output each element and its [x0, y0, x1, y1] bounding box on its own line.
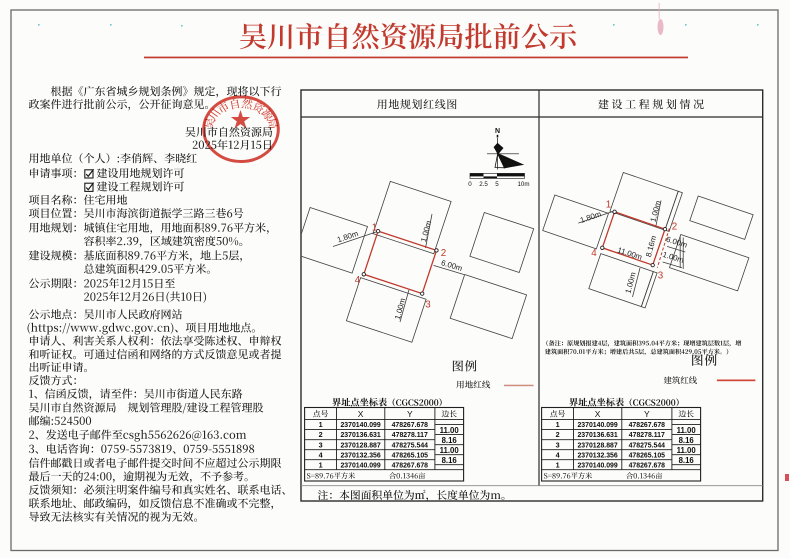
svg-text:4: 4 — [355, 275, 361, 286]
svg-text:0: 0 — [468, 181, 472, 188]
svg-text:478267.678: 478267.678 — [392, 422, 429, 429]
svg-text:478267.678: 478267.678 — [392, 462, 429, 469]
svg-text:4: 4 — [591, 248, 597, 259]
svg-text:478278.117: 478278.117 — [629, 432, 665, 439]
svg-text:Y: Y — [407, 409, 413, 419]
svg-text:2370140.099: 2370140.099 — [340, 422, 380, 429]
svg-text:1: 1 — [372, 223, 377, 234]
svg-text:2: 2 — [319, 430, 323, 439]
svg-text:478267.678: 478267.678 — [629, 422, 666, 429]
svg-text:2370128.887: 2370128.887 — [577, 442, 617, 449]
svg-text:2370132.356: 2370132.356 — [577, 452, 617, 459]
svg-text:8.16: 8.16 — [679, 436, 695, 445]
svg-text:10m: 10m — [517, 181, 529, 188]
svg-text:11.00: 11.00 — [677, 426, 697, 435]
svg-text:3: 3 — [556, 440, 560, 449]
svg-text:2370136.631: 2370136.631 — [577, 432, 617, 439]
svg-text:1: 1 — [319, 420, 323, 429]
svg-text:2370128.887: 2370128.887 — [340, 442, 380, 449]
svg-text:8.16: 8.16 — [442, 456, 458, 465]
svg-text:1: 1 — [556, 460, 560, 469]
svg-text:478275.544: 478275.544 — [392, 442, 429, 449]
svg-text:478265.105: 478265.105 — [629, 452, 666, 459]
svg-text:4: 4 — [556, 450, 560, 459]
svg-text:1: 1 — [606, 199, 611, 210]
svg-text:478275.544: 478275.544 — [629, 442, 666, 449]
svg-text:2370140.099: 2370140.099 — [340, 462, 380, 469]
svg-text:11.00: 11.00 — [440, 426, 460, 435]
svg-text:478267.678: 478267.678 — [629, 462, 666, 469]
svg-text:2370140.099: 2370140.099 — [577, 422, 617, 429]
svg-text:478265.105: 478265.105 — [392, 452, 429, 459]
svg-text:2: 2 — [556, 430, 560, 439]
svg-text:2370136.631: 2370136.631 — [340, 432, 380, 439]
svg-text:N: N — [495, 128, 500, 135]
svg-text:478278.117: 478278.117 — [392, 432, 428, 439]
svg-text:8.16: 8.16 — [442, 436, 458, 445]
svg-text:11.00: 11.00 — [677, 446, 697, 455]
svg-text:3: 3 — [319, 440, 323, 449]
svg-text:2370132.356: 2370132.356 — [340, 452, 380, 459]
svg-text:2.5: 2.5 — [479, 181, 488, 188]
svg-text:X: X — [358, 409, 364, 419]
svg-text:5: 5 — [495, 181, 499, 188]
svg-text:1: 1 — [556, 420, 560, 429]
svg-text:1: 1 — [319, 460, 323, 469]
svg-text:3: 3 — [658, 270, 664, 281]
svg-text:2: 2 — [441, 248, 446, 259]
svg-text:Y: Y — [644, 409, 650, 419]
svg-text:2370140.099: 2370140.099 — [577, 462, 617, 469]
svg-text:3: 3 — [425, 299, 431, 310]
svg-text:4: 4 — [319, 450, 323, 459]
svg-text:11.00: 11.00 — [440, 446, 460, 455]
svg-text:2: 2 — [672, 221, 677, 232]
svg-text:8.16: 8.16 — [679, 456, 695, 465]
svg-text:X: X — [595, 409, 601, 419]
